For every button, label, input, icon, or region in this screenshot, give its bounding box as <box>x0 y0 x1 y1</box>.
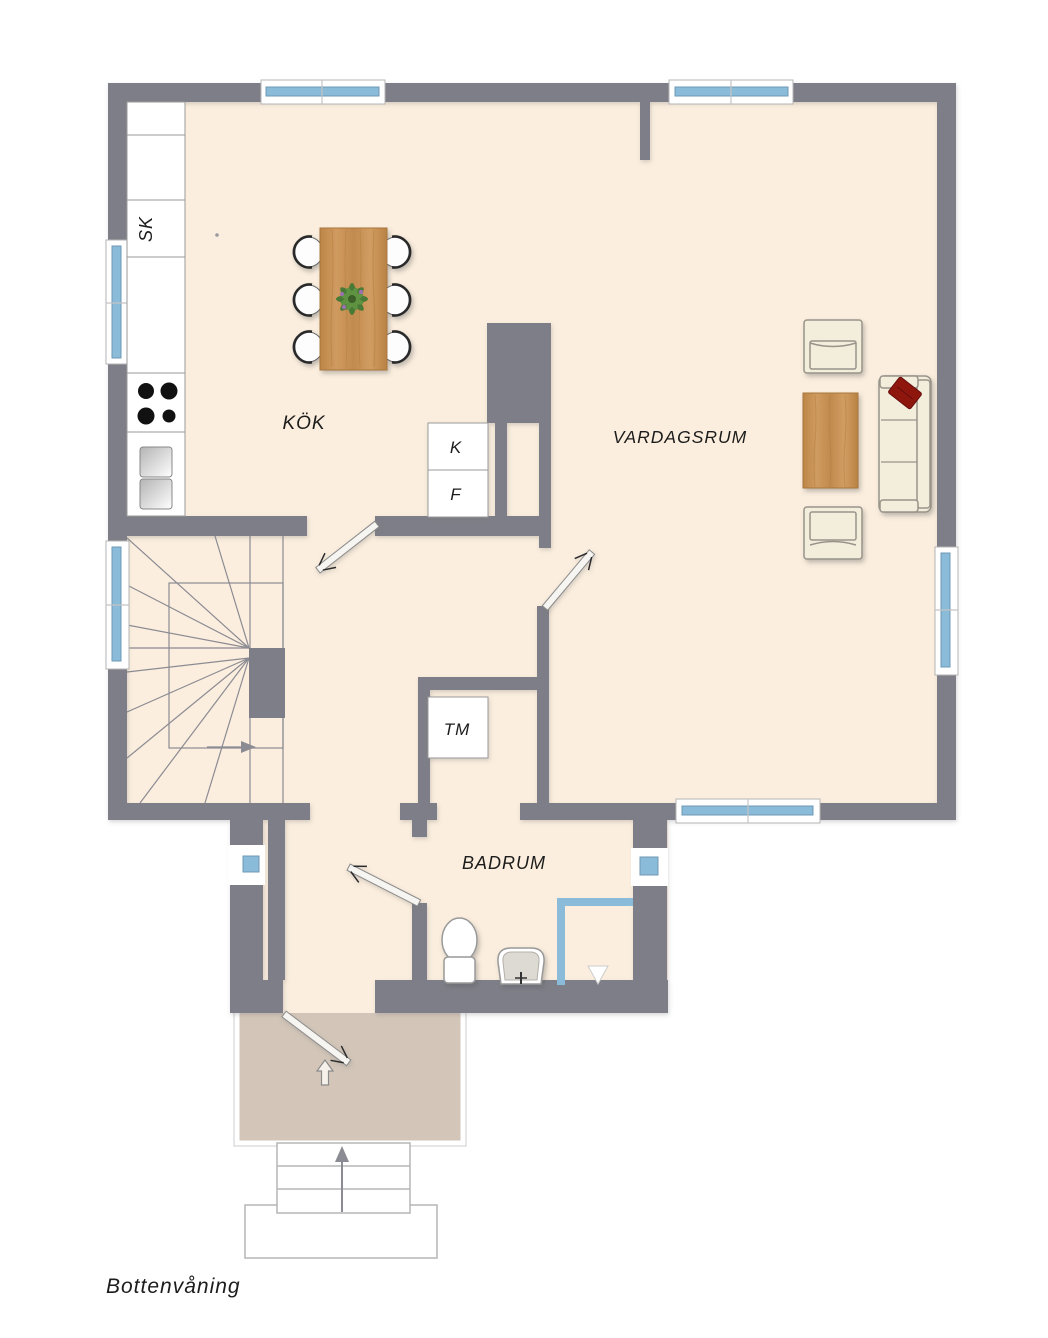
freezer-label: F <box>450 485 462 504</box>
window-bottom-living <box>676 799 820 823</box>
wall-bathdoor-stub <box>412 903 427 980</box>
kitchen-label: KÖK <box>282 413 325 434</box>
wall-hall <box>537 606 549 803</box>
dining-set <box>293 228 411 370</box>
kitchen-counter <box>127 102 185 516</box>
wall-right <box>937 102 956 820</box>
window-left-stairs <box>106 541 129 669</box>
sofa <box>879 376 931 512</box>
wall-bath-bottom <box>375 980 668 1013</box>
wall-hall-left-outer <box>230 820 263 980</box>
toilet <box>442 918 477 983</box>
window-left-kitchen <box>106 240 129 364</box>
wall-kitchen-bottom-left <box>108 516 307 536</box>
wall-stub-top <box>640 102 650 160</box>
wall-chimney <box>487 323 551 423</box>
wall-hall-bottom <box>230 980 283 1013</box>
window-top-kitchen <box>261 80 385 104</box>
fridge-label: K <box>450 438 462 457</box>
wall-hall-left-inner <box>268 820 285 980</box>
armchair-bottom <box>804 507 862 559</box>
stair-newel-wall <box>249 648 285 718</box>
wall-kitchen-bottom-right <box>375 516 551 536</box>
wall-top <box>108 83 956 102</box>
wall-niche-left <box>495 423 507 518</box>
window-top-living <box>669 80 793 104</box>
wall-tm-top <box>418 677 537 690</box>
washbasin <box>498 948 544 984</box>
armchair-top <box>804 320 862 373</box>
living-room-label: VARDAGSRUM <box>613 427 747 447</box>
bathroom-label: BADRUM <box>462 853 546 873</box>
floor-title: Bottenvåning <box>106 1275 241 1298</box>
table-plant <box>336 283 368 315</box>
wall-stair-bottom <box>108 803 310 820</box>
stove <box>127 373 185 432</box>
wall-band-mid <box>400 803 437 820</box>
plan-dot <box>215 233 219 237</box>
kitchen-sink <box>127 432 185 516</box>
floor-plan: KÖK VARDAGSRUM BADRUM SK K F TM Bottenvå… <box>0 0 1048 1338</box>
wall-niche-right <box>539 423 551 548</box>
vent-left <box>228 845 265 885</box>
window-right-living <box>935 547 958 675</box>
washing-machine-label: TM <box>444 720 471 739</box>
porch-floor <box>237 1013 463 1143</box>
wall-band-stub <box>412 820 427 837</box>
cabinet-label: SK <box>136 216 156 242</box>
wall-left <box>108 102 127 820</box>
vent-right <box>631 848 668 886</box>
